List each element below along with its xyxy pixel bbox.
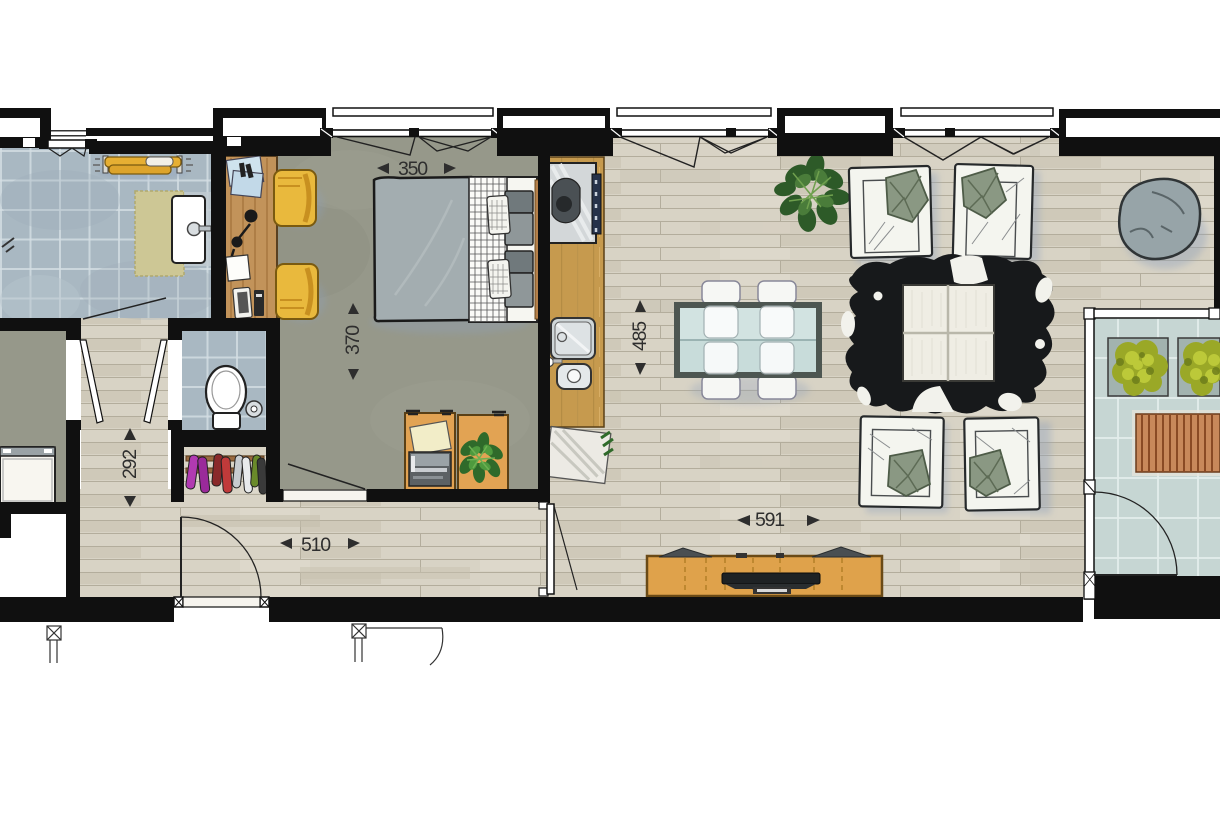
svg-text:485: 485	[629, 321, 651, 351]
svg-text:370: 370	[342, 325, 364, 355]
svg-text:510: 510	[301, 534, 331, 556]
svg-text:591: 591	[755, 509, 784, 531]
svg-text:350: 350	[398, 158, 428, 180]
svg-text:292: 292	[119, 450, 141, 479]
